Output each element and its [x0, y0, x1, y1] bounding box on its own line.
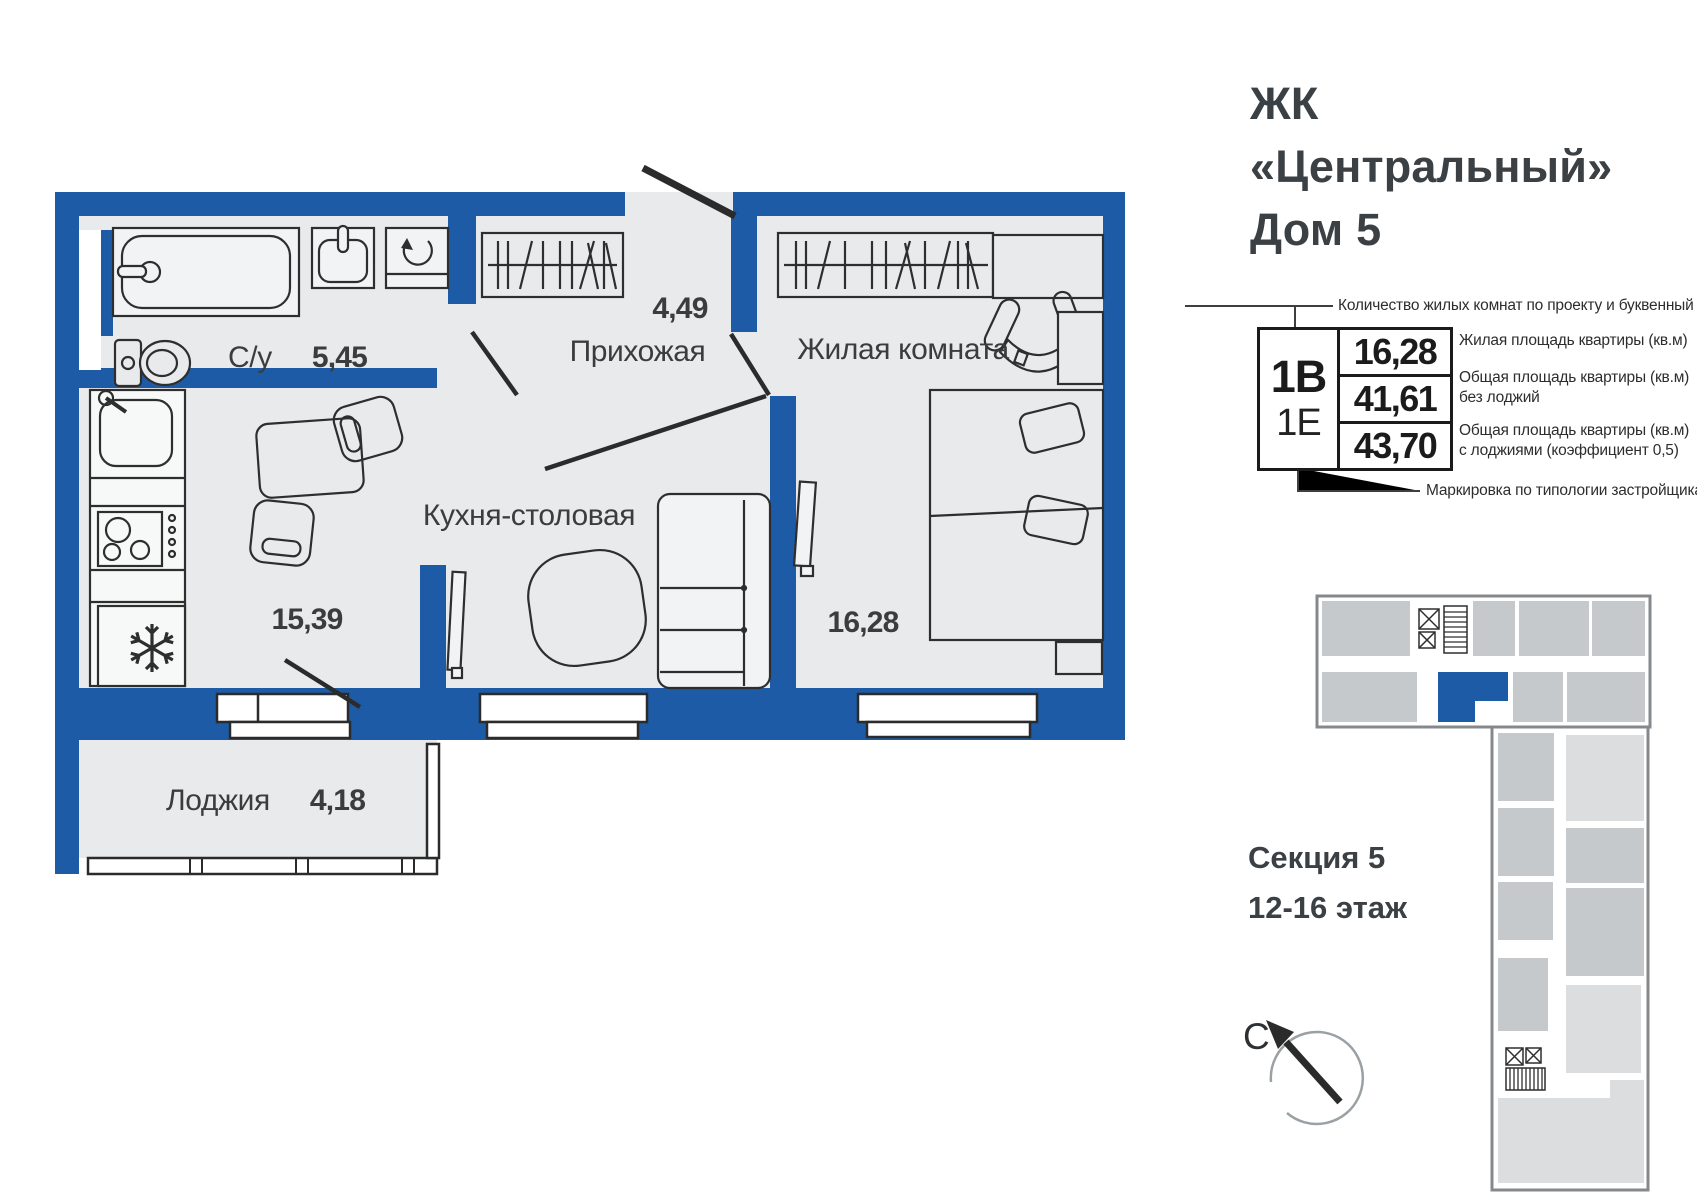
bed-icon: [930, 390, 1103, 640]
note-total-area: Общая площадь квартиры (кв.м) без лоджий: [1459, 368, 1689, 408]
shaft: [79, 230, 101, 370]
note-total-area-loggia: Общая площадь квартиры (кв.м) с лоджиями…: [1459, 421, 1689, 461]
wall-top-left: [55, 192, 625, 216]
living-room-label: Жилая комната: [788, 333, 1018, 367]
nightstand-icon: [1058, 312, 1103, 384]
section-label: Секция 5 12-16 этаж: [1248, 833, 1407, 933]
type-code: 1В: [1271, 353, 1327, 401]
sofa-icon: [658, 494, 770, 688]
hallway-label: Прихожая: [555, 335, 720, 369]
wall-top-right: [733, 192, 1125, 216]
washing-machine-icon: [386, 228, 448, 288]
sink-icon: [312, 226, 374, 288]
wall-living-upper: [731, 216, 757, 332]
note-room-count: Количество жилых комнат по проекту и бук…: [1338, 296, 1697, 316]
desk-icon: [993, 235, 1103, 298]
wall-kitchen-living: [770, 396, 796, 688]
total-area-with-loggia-value: 43,70: [1340, 424, 1450, 468]
hallway-area-label: 4,49: [640, 292, 720, 326]
balcony-door-window: [217, 694, 350, 738]
living-area-value: 16,28: [1340, 330, 1450, 377]
apartment-spec-table: 1В 1Е 16,28 41,61 43,70: [1257, 327, 1453, 471]
total-area-value: 41,61: [1340, 377, 1450, 424]
wall-shaft-strip: [101, 230, 113, 336]
toilet-icon: [115, 340, 190, 386]
area-values: 16,28 41,61 43,70: [1340, 330, 1450, 468]
bathroom-label: С/у5,45: [228, 341, 367, 375]
title-line-1: ЖК: [1250, 72, 1612, 135]
wall-hallway-stub: [448, 216, 476, 304]
type-code-secondary: 1Е: [1276, 401, 1320, 445]
north-arrow-icon: [1266, 1020, 1363, 1124]
hallway-wardrobe-icon: [482, 233, 623, 297]
bathtub-icon: [113, 228, 299, 316]
wardrobe-icon: [778, 233, 993, 297]
page-title: ЖК «Центральный» Дом 5: [1250, 72, 1612, 261]
fridge-icon: [98, 606, 185, 686]
wall-right: [1103, 192, 1125, 740]
title-line-3: Дом 5: [1250, 198, 1612, 261]
note-developer-marking: Маркировка по типологии застройщика: [1426, 481, 1697, 501]
kitchen-label: Кухня-столовая: [398, 499, 660, 533]
wall-left: [55, 192, 79, 874]
living-window: [858, 694, 1037, 737]
living-area-label: 16,28: [813, 606, 913, 640]
kitchen-area-label: 15,39: [258, 603, 356, 637]
wall-tv-stub: [420, 565, 446, 688]
loggia-label: Лоджия4,18: [166, 784, 365, 818]
kitchen-window: [480, 694, 647, 738]
bench-icon: [1056, 642, 1102, 674]
title-line-2: «Центральный»: [1250, 135, 1612, 198]
note-living-area: Жилая площадь квартиры (кв.м): [1459, 331, 1687, 351]
type-code-cell: 1В 1Е: [1260, 330, 1340, 468]
floorplan-page: ЖК «Центральный» Дом 5 1В 1Е 16,28 41,61…: [0, 0, 1697, 1200]
north-label: С: [1243, 1016, 1270, 1058]
